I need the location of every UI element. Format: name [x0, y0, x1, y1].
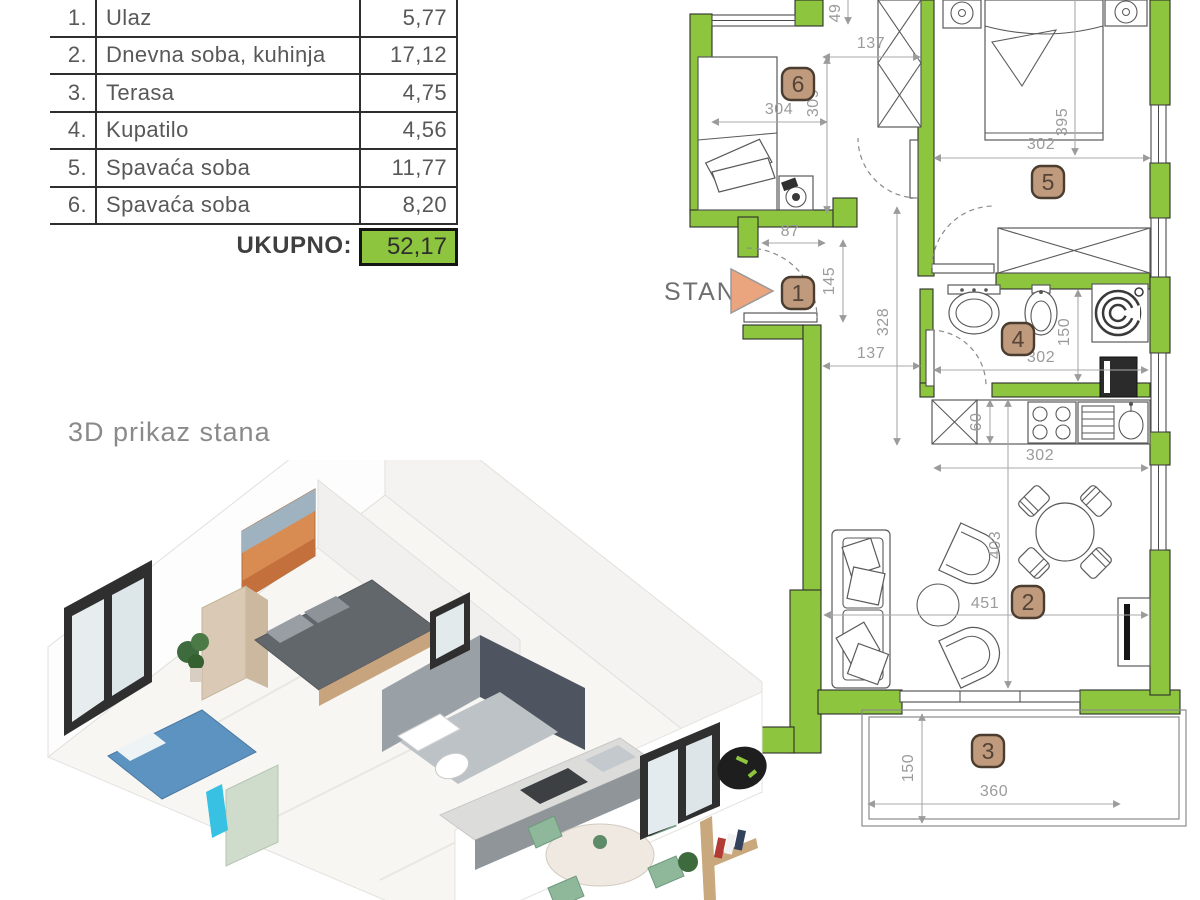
table-row: 1. Ulaz 5,77 [50, 0, 458, 38]
dim-451: 451 [971, 595, 999, 612]
dim-87: 87 [781, 223, 800, 240]
kitchen [932, 400, 1150, 444]
dim-304: 304 [765, 101, 793, 118]
window-right-3 [1151, 353, 1166, 432]
table-row: 6. Spavaća soba 8,20 [50, 188, 458, 226]
tv-console [1118, 598, 1150, 666]
render3d [0, 460, 800, 900]
door-arc-bath [930, 330, 986, 386]
bathroom-sink [948, 285, 1000, 334]
dim-328: 328 [875, 308, 892, 336]
room-name: Terasa [97, 75, 359, 111]
shower [1092, 284, 1148, 342]
wardrobe-hall [998, 228, 1150, 273]
table-row: 4. Kupatilo 4,56 [50, 113, 458, 151]
render3d-table-plant [593, 835, 607, 849]
coffee-table [917, 584, 959, 626]
dim-49: 49 [827, 4, 844, 23]
room-area: 4,75 [359, 75, 458, 111]
dim-360: 360 [980, 783, 1008, 800]
row-number: 5. [50, 150, 97, 186]
door-leaf-room5 [932, 264, 994, 273]
table-row: 3. Terasa 4,75 [50, 75, 458, 113]
dim-137-hall: 137 [857, 345, 885, 362]
dim-60: 60 [968, 413, 985, 432]
bed-room5 [985, 0, 1103, 140]
unit-pointer-triangle-icon [731, 269, 773, 313]
door-leaf-room6 [910, 140, 918, 198]
total-area-value: 52,17 [359, 228, 458, 266]
badge-room5: 5 [1042, 169, 1055, 195]
row-number: 2. [50, 38, 97, 74]
dim-302-room5: 302 [1027, 136, 1055, 153]
armchair-bottom [939, 619, 1008, 688]
row-number: 6. [50, 188, 97, 224]
row-number: 3. [50, 75, 97, 111]
dim-302-kitchen: 302 [1026, 447, 1054, 464]
door-leaf-bath [926, 330, 934, 386]
dim-150-terrace: 150 [900, 754, 917, 782]
window-right-2 [1151, 218, 1166, 277]
window-room6-top [712, 15, 795, 26]
room-area: 11,77 [359, 150, 458, 186]
room-name: Spavaća soba [97, 150, 359, 186]
wardrobe-room6 [878, 0, 921, 127]
badge-room4: 4 [1012, 326, 1025, 352]
total-label: UKUPNO: [50, 232, 359, 260]
stove [1028, 402, 1076, 443]
nightstand-right [1105, 0, 1147, 26]
room-name: Spavaća soba [97, 188, 359, 224]
row-number: 1. [50, 0, 97, 36]
row-number: 4. [50, 113, 97, 149]
dining-set [1017, 484, 1113, 580]
bed-room6 [698, 57, 777, 210]
door-arc-room6 [858, 138, 918, 198]
dining-table [1036, 503, 1094, 561]
dim-150-bath: 150 [1056, 318, 1073, 346]
table-row: 2. Dnevna soba, kuhinja 17,12 [50, 38, 458, 76]
terrace-sliding-door [900, 691, 1080, 702]
room-name: Dnevna soba, kuhinja [97, 38, 359, 74]
render3d-bookshelf [678, 816, 758, 900]
badge-room3: 3 [982, 738, 995, 764]
dim-403: 403 [987, 531, 1004, 559]
render3d-plant-small [678, 852, 698, 872]
door-leaf-entry [744, 313, 817, 322]
window-right-1 [1151, 105, 1166, 163]
window-right-4 [1151, 465, 1166, 550]
dim-145: 145 [821, 267, 838, 295]
sofa [832, 530, 890, 688]
table-row: 5. Spavaća soba 11,77 [50, 150, 458, 188]
badge-room1: 1 [792, 280, 805, 306]
badge-room6: 6 [792, 71, 805, 97]
vent-slit [1104, 361, 1110, 393]
nightstand-left [943, 0, 981, 28]
dim-137-top: 137 [857, 35, 885, 52]
table-total-row: UKUPNO: 52,17 [50, 225, 458, 267]
room-area: 8,20 [359, 188, 458, 224]
room-area: 4,56 [359, 113, 458, 149]
room-name: Ulaz [97, 0, 359, 36]
unit-label-group: STAN 1 [664, 269, 773, 313]
door-arc-room5 [932, 206, 994, 268]
kitchen-sink [1078, 402, 1148, 443]
room-area: 5,77 [359, 0, 458, 36]
badge-room2: 2 [1022, 589, 1035, 615]
side-table-room6 [779, 176, 813, 210]
render3d-title: 3D prikaz stana [68, 417, 271, 448]
room-area-table: 1. Ulaz 5,77 2. Dnevna soba, kuhinja 17,… [50, 0, 458, 267]
dim-395: 395 [1054, 108, 1071, 136]
room-area: 17,12 [359, 38, 458, 74]
room-name: Kupatilo [97, 113, 359, 149]
